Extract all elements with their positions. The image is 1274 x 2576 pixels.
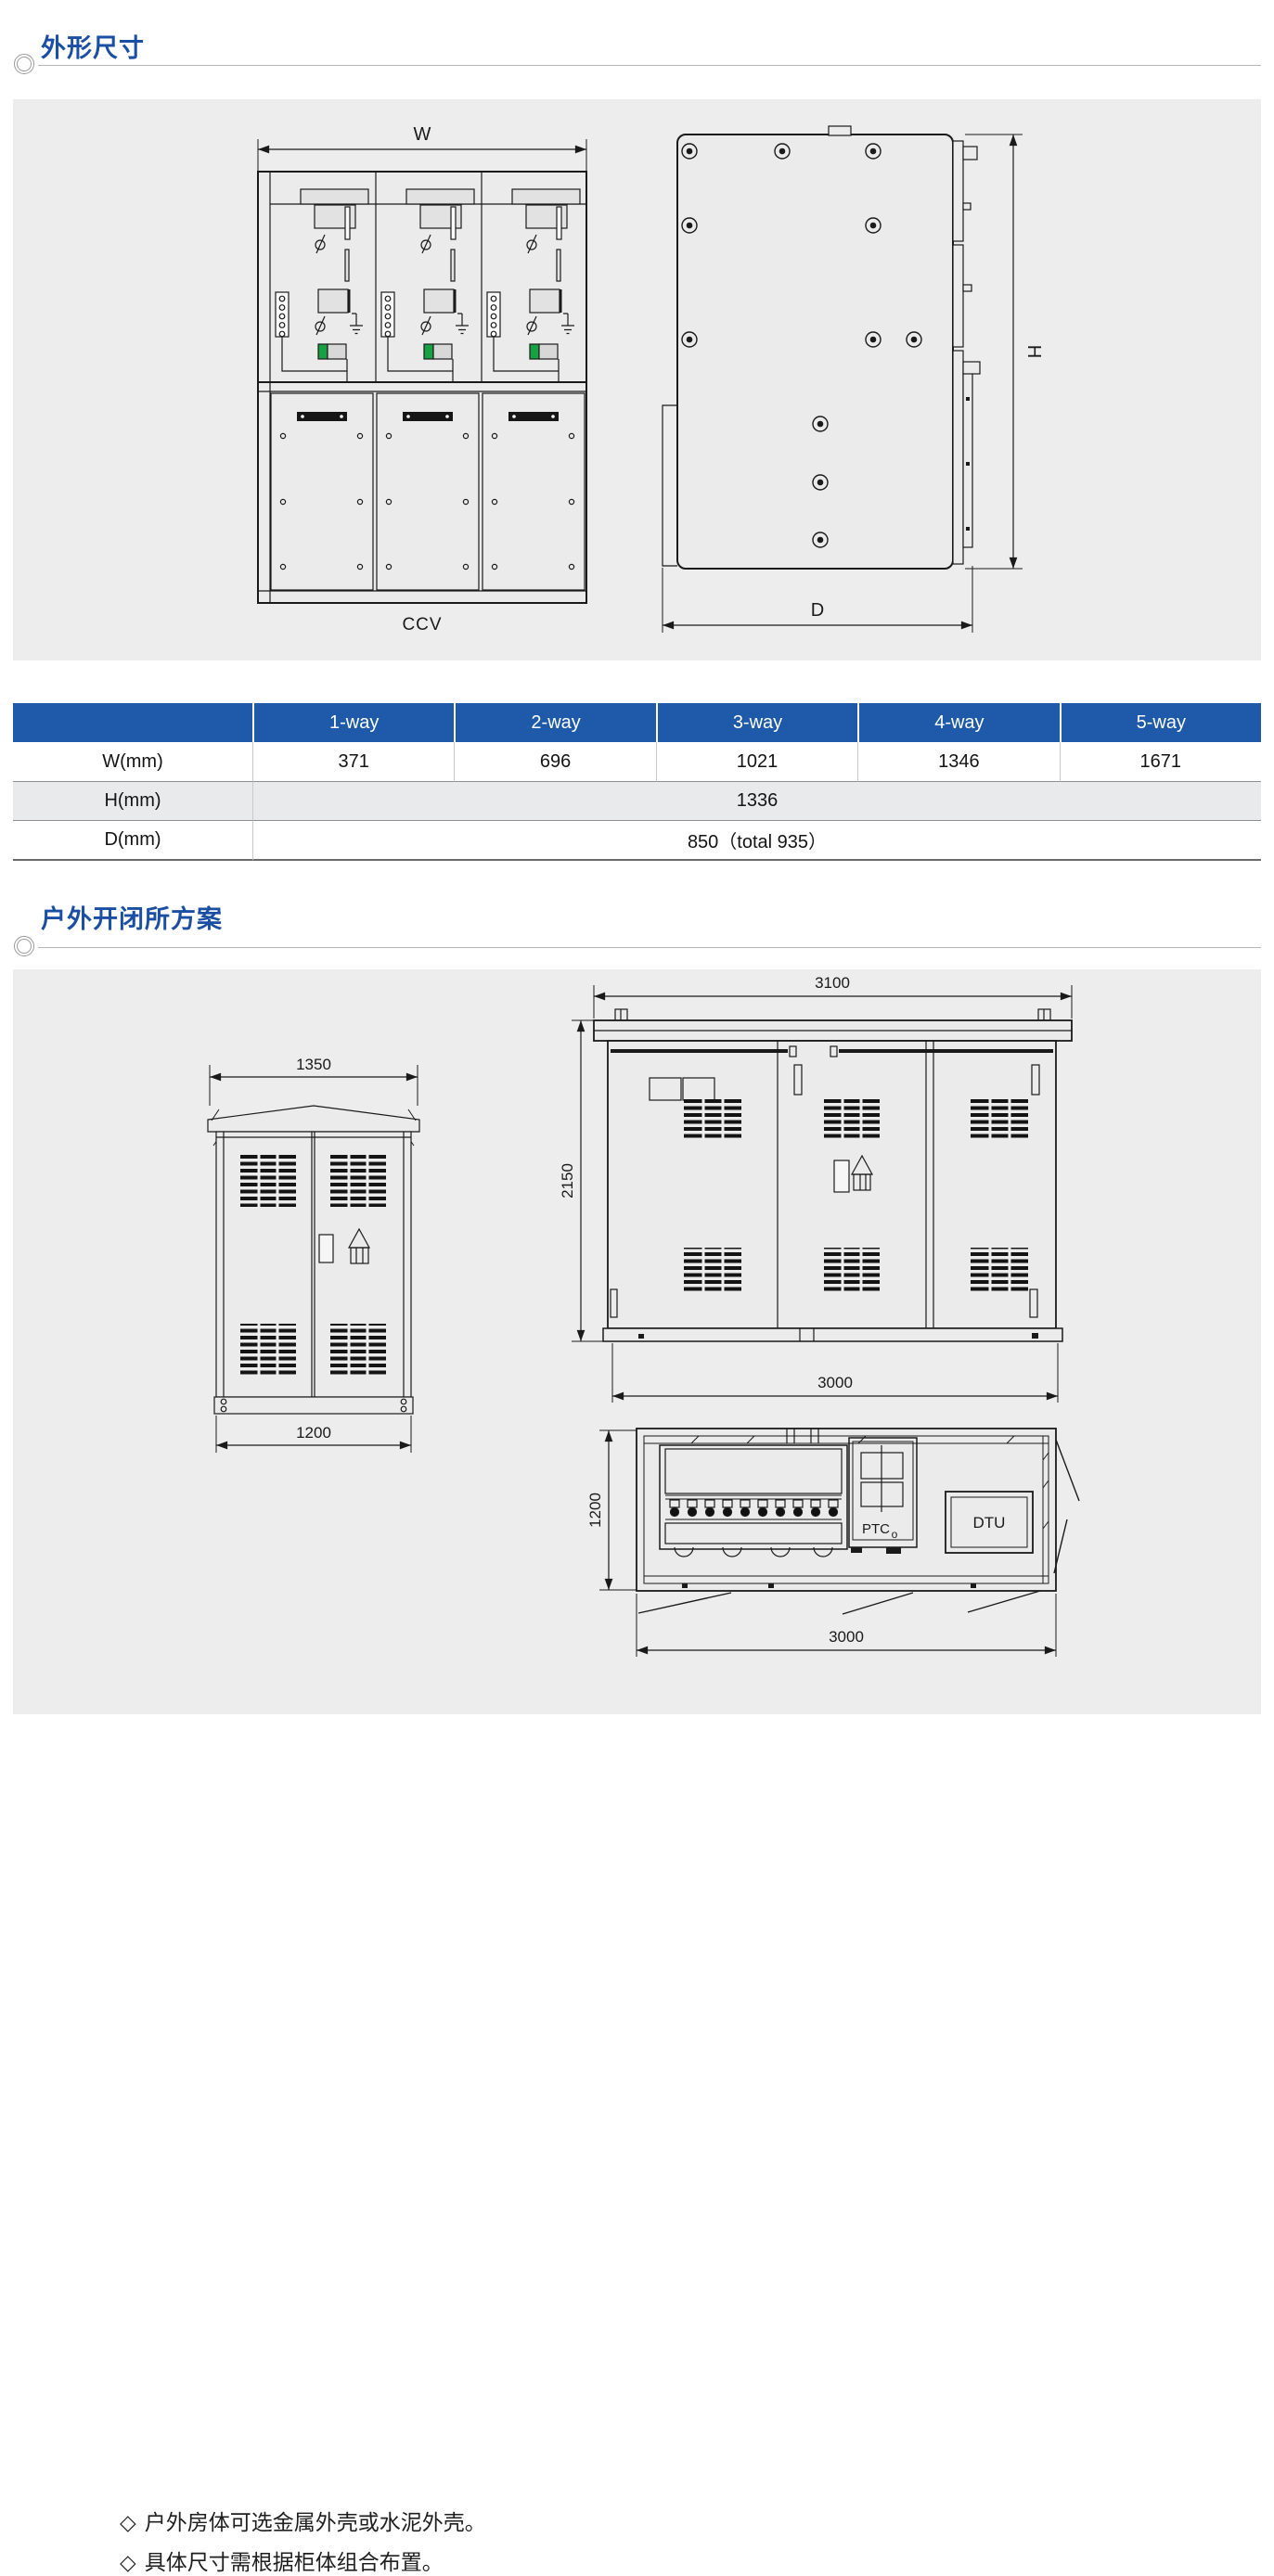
small-cabinet-width-dim: 1350 xyxy=(296,1056,331,1073)
station-plan-view: 1200 xyxy=(586,1429,1079,1657)
section-bullet-icon xyxy=(14,936,34,956)
dim-1350: 1350 xyxy=(210,1056,418,1106)
row-label-h: H(mm) xyxy=(13,782,252,821)
door-swing-lines xyxy=(638,1591,1040,1614)
dim-3100: 3100 xyxy=(594,974,1072,1019)
section-bullet-icon xyxy=(14,54,34,74)
table-cell: 371 xyxy=(252,742,454,782)
note-text: 具体尺寸需根据柜体组合布置。 xyxy=(145,2550,444,2574)
diamond-bullet-icon: ◇ xyxy=(120,2510,136,2534)
dim-3000-front: 3000 xyxy=(612,1343,1058,1403)
outdoor-station-drawing: 1350 1200 3100 xyxy=(13,969,1261,1714)
h-dimension-label: H xyxy=(1023,345,1044,358)
d-dimension: D xyxy=(663,566,972,633)
table-header-4way: 4-way xyxy=(857,703,1059,742)
table-cell: 1346 xyxy=(857,742,1059,782)
diamond-bullet-icon: ◇ xyxy=(120,2550,136,2574)
section-2-title: 户外开闭所方案 xyxy=(41,899,223,935)
table-cell: 1671 xyxy=(1060,742,1261,782)
d-dimension-label: D xyxy=(811,600,824,621)
table-header-2way: 2-way xyxy=(454,703,655,742)
dtu-box: DTU xyxy=(946,1492,1033,1553)
small-cabinet-front-view: 1350 1200 xyxy=(208,1056,419,1453)
section-rule xyxy=(38,947,1261,948)
front-view-caption: CCV xyxy=(402,615,442,634)
dim-1200-small: 1200 xyxy=(216,1416,411,1453)
note-text: 户外房体可选金属外壳或水泥外壳。 xyxy=(145,2510,486,2534)
dim-3000-plan: 3000 xyxy=(637,1594,1056,1657)
w-dimension: W xyxy=(258,124,586,174)
section-rule xyxy=(38,65,1261,66)
station-height-dim: 2150 xyxy=(559,1163,576,1198)
plan-width-dim: 3000 xyxy=(829,1628,864,1646)
ccv-front-view: W CCV xyxy=(258,124,587,634)
dtu-label: DTU xyxy=(973,1514,1006,1532)
table-cell-merged: 850（total 935） xyxy=(252,821,1261,861)
row-label-w: W(mm) xyxy=(13,742,252,782)
h-dimension: H xyxy=(965,135,1044,569)
side-view: H D xyxy=(663,126,1044,633)
ptc-subscript: o xyxy=(892,1528,898,1541)
note-item: ◇户外房体可选金属外壳或水泥外壳。 xyxy=(120,2505,486,2536)
row-label-d: D(mm) xyxy=(13,821,252,861)
note-item: ◇具体尺寸需根据柜体组合布置。 xyxy=(120,2544,444,2576)
ptc-label: PTC xyxy=(862,1521,890,1537)
table-header-5way: 5-way xyxy=(1060,703,1261,742)
plan-depth-dim: 1200 xyxy=(586,1493,604,1528)
table-header-3way: 3-way xyxy=(656,703,857,742)
dim-1200-plan: 1200 xyxy=(586,1430,637,1590)
dim-2150: 2150 xyxy=(559,1020,603,1341)
station-base-dim: 3000 xyxy=(817,1374,853,1391)
large-station-front-view: 3100 2150 xyxy=(559,974,1072,1403)
table-cell: 1021 xyxy=(656,742,857,782)
station-width-dim: 3100 xyxy=(815,974,850,992)
section-1-title: 外形尺寸 xyxy=(41,28,145,64)
outdoor-station-panel: 1350 1200 3100 xyxy=(13,969,1261,1714)
w-dimension-label: W xyxy=(414,124,431,145)
outline-dimensions-drawing: W CCV H xyxy=(13,99,1261,660)
dimensions-table: 1-way 2-way 3-way 4-way 5-way W(mm) 371 … xyxy=(13,703,1261,861)
table-cell: 696 xyxy=(454,742,655,782)
small-cabinet-base-dim: 1200 xyxy=(296,1424,331,1442)
outline-dimensions-panel: W CCV H xyxy=(13,99,1261,660)
table-cell-merged: 1336 xyxy=(252,782,1261,821)
table-header-1way: 1-way xyxy=(252,703,454,742)
table-corner-cell xyxy=(13,703,252,742)
